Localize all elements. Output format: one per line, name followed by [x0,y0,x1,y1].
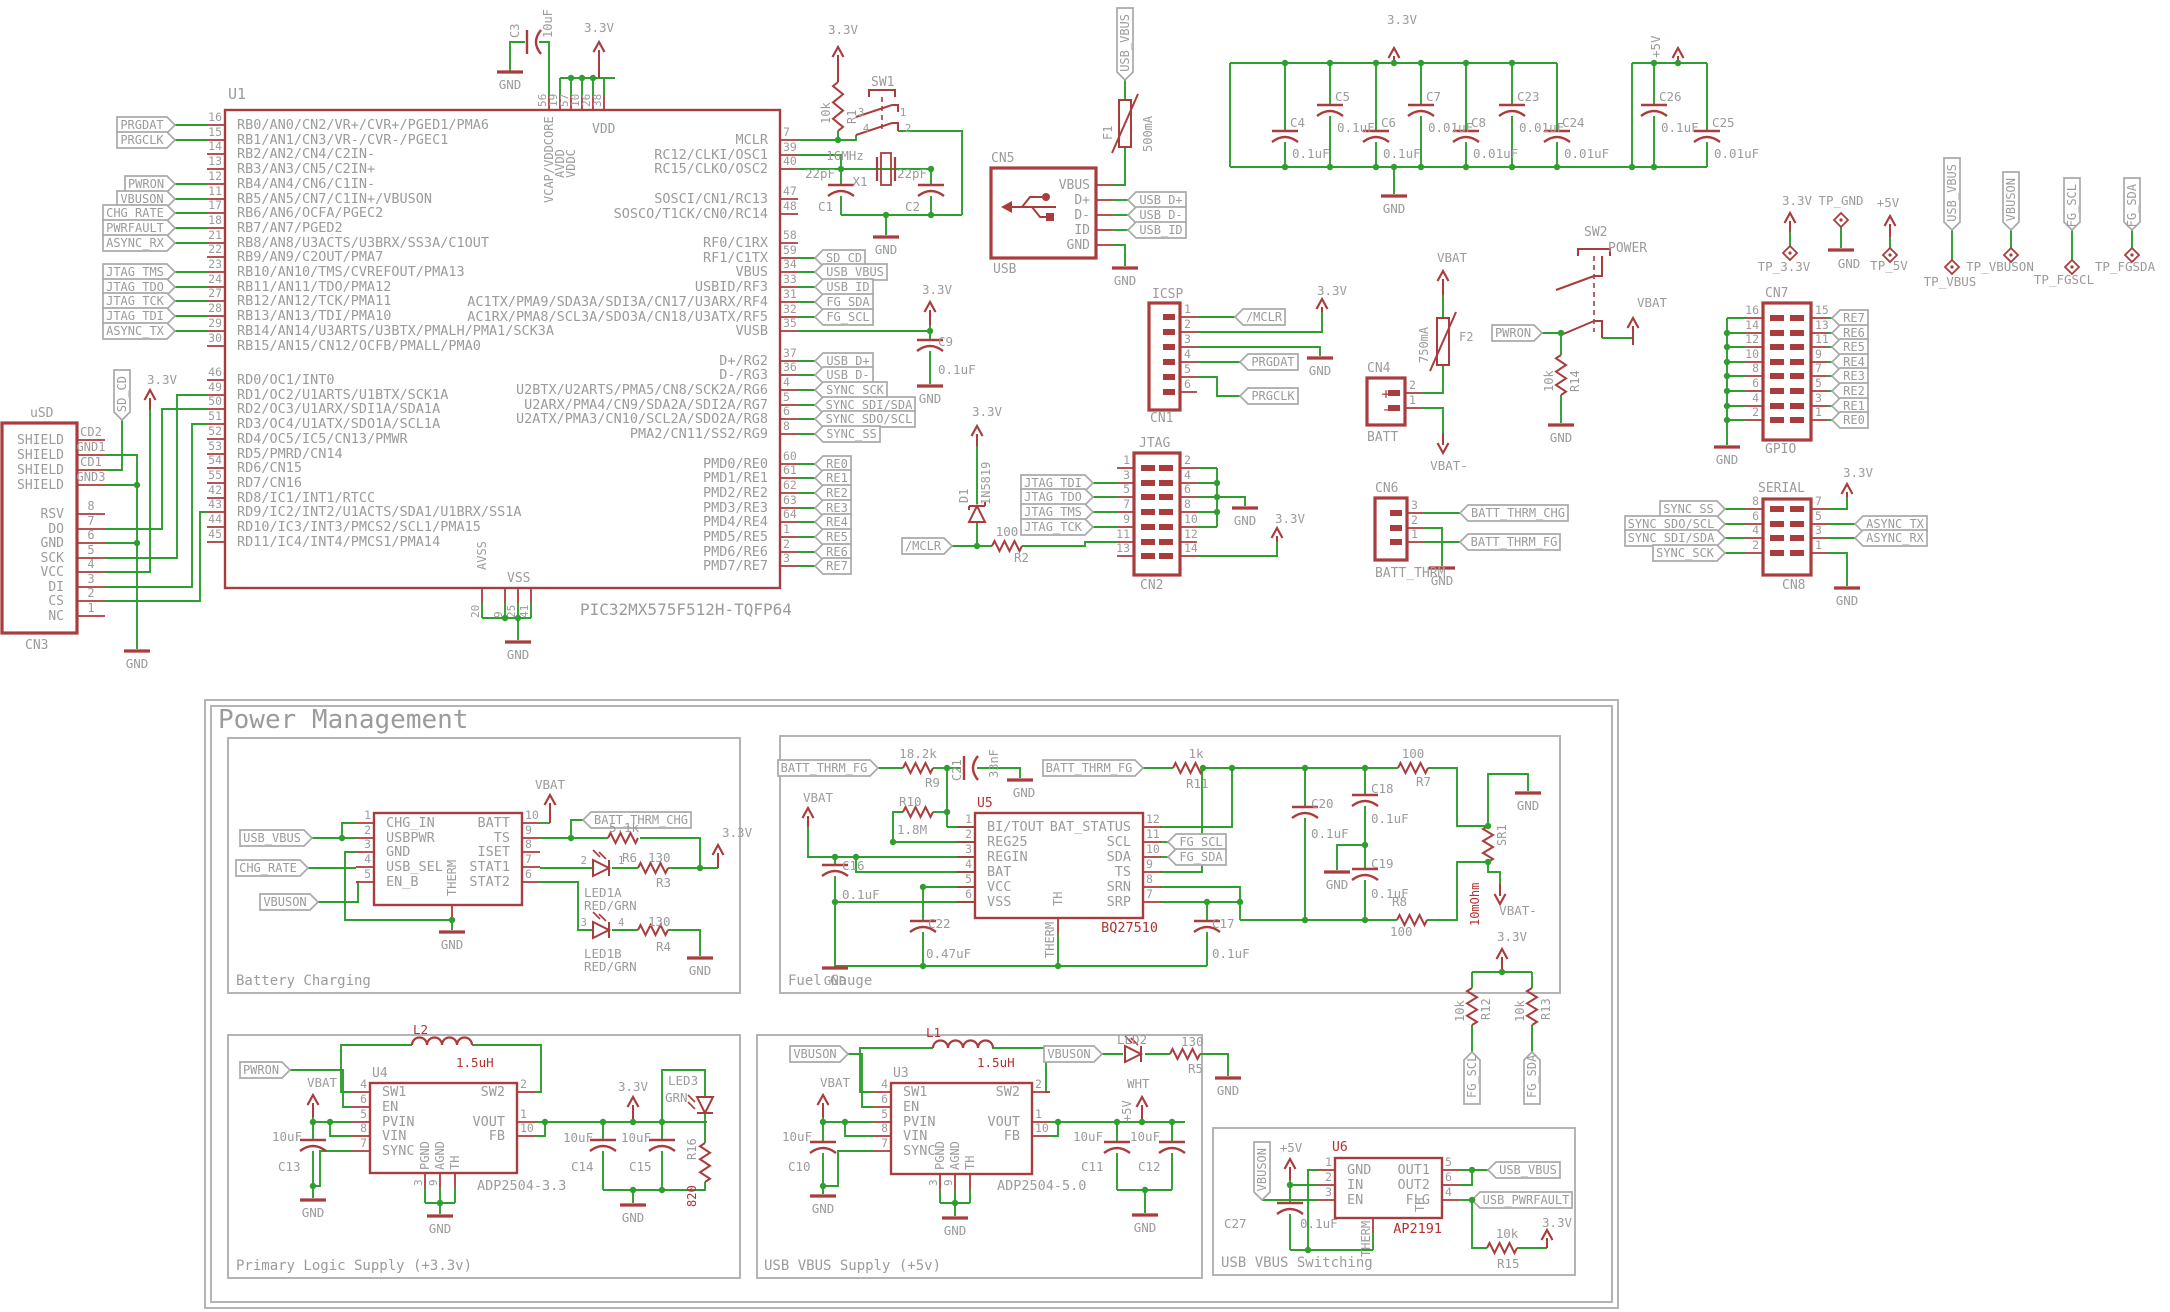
svg-text:VSS: VSS [987,894,1011,910]
svg-text:BATT: BATT [1367,430,1398,445]
schematic-svg: Power ManagementBattery ChargingFuel Gau… [0,0,2170,1312]
svg-text:L1: L1 [926,1025,941,1040]
svg-text:500mA: 500mA [1141,115,1155,152]
svg-text:0.1uF: 0.1uF [842,887,880,902]
svg-text:3: 3 [858,106,865,119]
svg-text:RD10/IC3/INT3/PMCS2/SCL1/PMA15: RD10/IC3/INT3/PMCS2/SCL1/PMA15 [237,519,481,535]
svg-text:2: 2 [1752,538,1759,552]
svg-text:5: 5 [1123,482,1130,496]
svg-text:SDA: SDA [1107,849,1131,865]
svg-text:VBAT-: VBAT- [1430,458,1468,473]
svg-text:TH: TH [1413,1198,1427,1212]
svg-text:USB VBUS Supply (+5v): USB VBUS Supply (+5v) [764,1258,941,1274]
svg-text:22: 22 [208,242,222,256]
net-label-async-tx: ASYNC_TX [103,323,175,339]
svg-text:SW1: SW1 [382,1084,406,1100]
svg-text:3: 3 [364,837,371,851]
svg-text:FG_SDA: FG_SDA [1179,850,1223,864]
svg-text:17: 17 [208,198,222,212]
svg-text:TP_5V: TP_5V [1870,258,1908,273]
svg-text:3: 3 [1815,391,1822,405]
svg-text:PMD2/RE2: PMD2/RE2 [703,485,768,501]
net-label-batt-thrm-chg: BATT_THRM_CHG [1460,505,1568,521]
svg-text:GND: GND [919,391,942,406]
svg-text:AVSS: AVSS [475,541,489,570]
net-label-re1: RE1 [815,470,851,486]
svg-text:10: 10 [520,1121,534,1135]
net-label-usb-id: USB_ID [1128,222,1186,238]
net-label-prgdat: PRGDAT [1240,354,1298,370]
svg-text:CN1: CN1 [1150,411,1173,426]
svg-text:1.8M: 1.8M [897,822,927,837]
net-label-fg-scl: FG_SCL [2064,178,2080,230]
svg-text:VBUS: VBUS [1059,178,1090,193]
svg-text:C19: C19 [1371,856,1394,871]
net-label-re3: RE3 [1832,368,1868,384]
svg-text:R5: R5 [1188,1061,1203,1076]
svg-text:1k: 1k [1188,746,1204,761]
svg-text:WHT: WHT [1127,1076,1150,1091]
svg-text:/MCLR: /MCLR [1246,310,1283,324]
svg-text:VBUSON: VBUSON [793,1047,836,1061]
svg-text:47: 47 [783,184,797,198]
net-label-pwron: PWRON [240,1062,290,1078]
net-label-vbuson: VBUSON [1254,1142,1270,1200]
svg-text:7: 7 [881,1136,888,1150]
svg-text:TP_FGSDA: TP_FGSDA [2095,259,2156,274]
svg-text:32: 32 [783,302,797,316]
net-label-fg-sda: FG_SDA [1168,849,1226,865]
net-label-fg-scl: FG_SCL [815,309,873,325]
svg-text:GND1: GND1 [77,440,106,454]
svg-text:0.01uF: 0.01uF [1473,146,1518,161]
svg-text:USB VBUS Switching: USB VBUS Switching [1221,1255,1373,1271]
svg-text:VBAT: VBAT [535,777,566,792]
svg-text:28: 28 [208,301,222,315]
svg-text:4: 4 [1184,347,1191,361]
svg-text:8: 8 [525,837,532,851]
svg-text:33nF: 33nF [987,749,1001,778]
svg-text:3: 3 [783,551,790,565]
svg-text:0.47uF: 0.47uF [926,946,971,961]
svg-text:5: 5 [965,872,972,886]
svg-text:33: 33 [783,272,797,286]
net-label-usb-id: USB_ID [815,279,873,295]
svg-text:+5V: +5V [1280,1140,1303,1155]
net-label-jtag-tms: JTAG_TMS [103,264,175,280]
svg-text:0.1uF: 0.1uF [1337,120,1375,135]
svg-text:RD2/OC3/U1ARX/SDI1A/SDA1A: RD2/OC3/U1ARX/SDI1A/SDA1A [237,401,440,417]
svg-text:7: 7 [525,852,532,866]
svg-text:RSV: RSV [41,507,65,522]
svg-text:U1: U1 [228,85,246,103]
svg-text:12: 12 [208,169,222,183]
svg-text:GND: GND [1134,1220,1157,1235]
svg-text:FB: FB [489,1128,505,1144]
svg-text:7: 7 [1815,494,1822,508]
svg-text:POWER: POWER [1608,241,1647,256]
svg-text:11: 11 [1116,527,1130,541]
svg-text:1: 1 [1325,1155,1332,1169]
svg-text:C15: C15 [629,1159,652,1174]
svg-text:OUT1: OUT1 [1397,1162,1430,1178]
svg-text:GND: GND [1716,452,1739,467]
svg-text:6: 6 [1752,376,1759,390]
svg-text:SHIELD: SHIELD [17,463,64,478]
net-label-sync-sdi-sda: SYNC_SDI/SDA [1625,530,1725,546]
svg-text:C4: C4 [1290,115,1305,130]
svg-text:RD4/OC5/IC5/CN13/PMWR: RD4/OC5/IC5/CN13/PMWR [237,431,409,447]
svg-text:U6: U6 [1332,1140,1348,1155]
svg-text:C25: C25 [1712,115,1735,130]
svg-text:3: 3 [1184,332,1191,346]
svg-text:/MCLR: /MCLR [905,539,942,553]
svg-text:R2: R2 [1014,550,1029,565]
net-label-re7: RE7 [815,558,851,574]
svg-text:RB14/AN14/U3ARTS/U3BTX/PMALH/P: RB14/AN14/U3ARTS/U3BTX/PMALH/PMA1/SCK3A [237,323,554,339]
net-label-re5: RE5 [815,529,851,545]
svg-text:RD7/CN16: RD7/CN16 [237,475,302,491]
svg-text:35: 35 [783,316,797,330]
svg-text:2: 2 [1409,378,1416,392]
svg-text:C2: C2 [905,199,920,214]
svg-text:R7: R7 [1416,774,1431,789]
svg-text:C6: C6 [1381,115,1396,130]
net-label-fg-sda: FG_SDA [2124,178,2140,230]
svg-text:ICSP: ICSP [1152,287,1183,302]
svg-text:C9: C9 [938,334,953,349]
svg-text:C12: C12 [1138,1159,1161,1174]
svg-text:10mOhm: 10mOhm [1468,883,1482,926]
svg-text:18.2k: 18.2k [899,746,937,761]
svg-text:6: 6 [1445,1170,1452,1184]
svg-text:VBUSON: VBUSON [1047,1047,1090,1061]
svg-text:RB2/AN2/CN4/C2IN-: RB2/AN2/CN4/C2IN- [237,146,375,162]
svg-text:PMD1/RE1: PMD1/RE1 [703,470,768,486]
svg-text:TP_3.3V: TP_3.3V [1758,259,1811,274]
net-label-sync-sck: SYNC_SCK [1653,545,1725,561]
net-label-usb-d-: USB_D- [1128,207,1186,223]
svg-text:40: 40 [783,154,797,168]
svg-text:7: 7 [1815,361,1822,375]
svg-text:SYNC_SS: SYNC_SS [826,427,877,441]
net-label-re0: RE0 [1832,412,1868,428]
svg-text:5: 5 [1184,362,1191,376]
svg-text:BATT_THRM_FG: BATT_THRM_FG [1471,535,1558,549]
svg-text:PWRFAULT: PWRFAULT [106,221,164,235]
svg-text:3: 3 [581,917,587,929]
svg-text:2: 2 [581,855,587,867]
svg-text:C18: C18 [1371,781,1394,796]
svg-text:RE4: RE4 [1843,355,1865,369]
svg-text:SYNC_SDO/SCL: SYNC_SDO/SCL [1628,517,1715,531]
svg-text:R4: R4 [656,939,671,954]
svg-text:4: 4 [364,852,371,866]
svg-text:LED3: LED3 [668,1073,698,1088]
svg-text:1: 1 [87,601,94,615]
svg-text:61: 61 [783,463,797,477]
svg-text:11: 11 [208,184,222,198]
svg-text:1N5819: 1N5819 [979,462,993,505]
svg-text:12: 12 [1146,812,1160,826]
svg-text:C14: C14 [571,1159,594,1174]
svg-text:C22: C22 [928,916,951,931]
svg-text:0.01uF: 0.01uF [1564,146,1609,161]
svg-text:1: 1 [965,812,972,826]
svg-text:VIN: VIN [903,1128,927,1144]
svg-text:34: 34 [783,257,797,271]
svg-text:JTAG_TDO: JTAG_TDO [106,280,164,294]
svg-text:FG_SCL: FG_SCL [1465,1055,1479,1098]
svg-text:3.3V: 3.3V [1782,193,1813,208]
svg-text:ID: ID [1074,223,1090,238]
svg-text:3: 3 [1815,523,1822,537]
svg-text:VIN: VIN [382,1128,406,1144]
svg-text:10: 10 [525,808,539,822]
svg-text:6: 6 [965,887,972,901]
svg-text:CN5: CN5 [991,151,1014,166]
svg-text:RE2: RE2 [826,486,848,500]
svg-text:VBAT: VBAT [307,1075,338,1090]
svg-text:RE3: RE3 [826,501,848,515]
svg-text:39: 39 [783,140,797,154]
svg-text:FG_SCL: FG_SCL [1179,835,1222,849]
svg-text:6: 6 [1752,509,1759,523]
svg-text:+5V: +5V [1648,35,1663,58]
svg-text:SHIELD: SHIELD [17,478,64,493]
svg-text:RF0/C1RX: RF0/C1RX [703,235,768,251]
svg-text:1: 1 [1815,538,1822,552]
svg-text:VBUSON: VBUSON [263,895,306,909]
svg-text:SYNC_SCK: SYNC_SCK [1656,546,1715,560]
svg-text:20: 20 [469,605,482,618]
svg-text:RB3/AN3/CN5/C2IN+: RB3/AN3/CN5/C2IN+ [237,161,375,177]
svg-text:R11: R11 [1186,776,1209,791]
svg-text:SW1: SW1 [871,75,894,90]
svg-text:OUT2: OUT2 [1397,1177,1430,1193]
net-label-sync-sdo-scl: SYNC_SDO/SCL [815,411,915,427]
svg-text:51: 51 [208,409,222,423]
svg-text:RE1: RE1 [1843,399,1865,413]
svg-text:2: 2 [1184,317,1191,331]
svg-text:PMD7/RE7: PMD7/RE7 [703,558,768,574]
svg-text:10uF: 10uF [272,1129,302,1144]
svg-text:2: 2 [364,823,371,837]
svg-text:820: 820 [685,1185,699,1207]
svg-text:FG_SCL: FG_SCL [2065,184,2079,227]
svg-text:12: 12 [1184,527,1198,541]
svg-text:RED/GRN: RED/GRN [584,959,637,974]
svg-text:SW2: SW2 [996,1084,1020,1100]
net-label-jtag-tck: JTAG_TCK [1021,519,1093,535]
svg-text:RD3/OC4/U1ATX/SDO1A/SCL1A: RD3/OC4/U1ATX/SDO1A/SCL1A [237,416,440,432]
svg-text:JTAG_TDI: JTAG_TDI [1024,476,1082,490]
svg-text:VBAT: VBAT [1437,250,1468,265]
svg-text:2: 2 [783,537,790,551]
svg-text:F2: F2 [1459,330,1473,344]
svg-text:R16: R16 [685,1138,699,1160]
svg-text:3: 3 [965,842,972,856]
svg-text:6: 6 [783,404,790,418]
svg-text:RB0/AN0/CN2/VR+/CVR+/PGED1/PMA: RB0/AN0/CN2/VR+/CVR+/PGED1/PMA6 [237,117,489,133]
svg-text:GND: GND [1114,273,1137,288]
svg-text:6: 6 [87,528,94,542]
svg-text:3.3V: 3.3V [1497,929,1528,944]
svg-text:GND: GND [622,1210,645,1225]
svg-text:Primary Logic Supply (+3.3v): Primary Logic Supply (+3.3v) [236,1258,472,1274]
svg-text:C17: C17 [1212,916,1235,931]
svg-text:THERM: THERM [1043,922,1057,958]
svg-text:10: 10 [1146,842,1160,856]
svg-text:ASYNC_TX: ASYNC_TX [106,324,165,338]
svg-text:JTAG_TMS: JTAG_TMS [1024,505,1082,519]
svg-text:D1: D1 [957,489,971,503]
svg-text:BI/TOUT: BI/TOUT [987,819,1044,835]
svg-text:0.1uF: 0.1uF [1300,1216,1338,1231]
svg-text:GND: GND [1383,201,1406,216]
svg-text:EN: EN [903,1099,919,1115]
svg-text:13: 13 [208,154,222,168]
svg-text:RE7: RE7 [826,559,848,573]
svg-text:GND: GND [1013,785,1036,800]
net-label-usb-pwrfault: USB_PWRFAULT [1472,1192,1572,1208]
svg-text:8: 8 [87,499,94,513]
svg-text:2: 2 [1411,513,1418,527]
svg-text:RE5: RE5 [826,530,848,544]
svg-text:24: 24 [208,272,222,286]
svg-text:38: 38 [591,94,604,107]
svg-text:SRP: SRP [1107,894,1131,910]
svg-text:3.3V: 3.3V [1317,283,1348,298]
svg-text:RE6: RE6 [1843,326,1865,340]
svg-text:3: 3 [412,1179,425,1186]
svg-text:PGND: PGND [933,1141,947,1170]
svg-text:14: 14 [208,139,222,153]
svg-text:6: 6 [1184,377,1191,391]
svg-text:8: 8 [1184,497,1191,511]
svg-text:U2BTX/U2ARTS/PMA5/CN8/SCK2A/RG: U2BTX/U2ARTS/PMA5/CN8/SCK2A/RG6 [516,382,768,398]
svg-text:8: 8 [1752,361,1759,375]
svg-text:RC15/CLKO/OSC2: RC15/CLKO/OSC2 [654,161,768,177]
svg-text:JTAG_TDO: JTAG_TDO [1024,490,1082,504]
svg-text:RE1: RE1 [826,471,848,485]
net-label-prgdat: PRGDAT [117,117,175,133]
svg-text:10uF: 10uF [782,1129,812,1144]
svg-text:FG_SDA: FG_SDA [1525,1054,1539,1098]
svg-text:7: 7 [360,1136,367,1150]
svg-text:GND: GND [1836,593,1859,608]
net-label-vbuson: VBUSON [2003,172,2019,230]
svg-text:FG_SCL: FG_SCL [826,310,869,324]
svg-text:7: 7 [783,125,790,139]
svg-text:BATT: BATT [477,815,510,831]
svg-text:VBAT-: VBAT- [1499,903,1537,918]
svg-text:GND: GND [41,536,65,551]
svg-text:14: 14 [1184,541,1198,555]
svg-text:R12: R12 [1479,998,1493,1020]
svg-text:USBID/RF3: USBID/RF3 [695,279,768,295]
svg-text:130: 130 [1181,1034,1204,1049]
svg-text:GND: GND [1517,798,1540,813]
svg-text:BQ27510: BQ27510 [1101,920,1158,936]
svg-text:2: 2 [87,586,94,600]
net-label-jtag-tdo: JTAG_TDO [1021,489,1093,505]
svg-text:ADP2504-3.3: ADP2504-3.3 [477,1178,566,1194]
svg-text:10: 10 [1035,1121,1049,1135]
svg-text:USB_ID: USB_ID [1139,223,1182,237]
svg-text:CN7: CN7 [1765,286,1788,301]
net-label-sync-ss: SYNC_SS [815,426,880,442]
svg-text:SD_CD: SD_CD [115,376,129,412]
svg-text:REG25: REG25 [987,834,1028,850]
net-label-vbuson: VBUSON [260,894,318,910]
svg-text:1: 1 [783,522,790,536]
svg-text:PRGCLK: PRGCLK [120,133,164,147]
svg-text:D-/RG3: D-/RG3 [719,367,768,383]
svg-text:9: 9 [1123,512,1130,526]
svg-text:RE3: RE3 [1843,369,1865,383]
svg-text:1: 1 [1035,1107,1042,1121]
svg-text:100: 100 [1402,746,1425,761]
svg-text:R15: R15 [1497,1256,1520,1271]
svg-text:AP2191: AP2191 [1393,1221,1442,1237]
svg-text:1: 1 [1409,393,1416,407]
svg-text:SCL: SCL [1107,834,1131,850]
net-label-re4: RE4 [815,514,851,530]
svg-text:8: 8 [783,419,790,433]
svg-text:SCK: SCK [41,551,65,566]
svg-text:GND: GND [824,973,847,988]
svg-text:2: 2 [905,122,912,135]
svg-text:VDD: VDD [592,122,616,137]
svg-text:3: 3 [1411,498,1418,512]
svg-text:R9: R9 [925,775,940,790]
svg-text:CS: CS [48,594,64,609]
svg-text:1: 1 [1411,527,1418,541]
svg-text:29: 29 [208,316,222,330]
svg-text:U2ATX/PMA3/CN10/SCL2A/SDO2A/RG: U2ATX/PMA3/CN10/SCL2A/SDO2A/RG8 [516,411,768,427]
net-label-usb-vbus: USB_VBUS [1117,8,1133,80]
net-label-re2: RE2 [1832,383,1868,399]
svg-text:1.5uH: 1.5uH [456,1055,494,1070]
svg-text:10uF: 10uF [541,9,555,38]
svg-text:DI: DI [48,580,64,595]
svg-text:SHIELD: SHIELD [17,433,64,448]
svg-text:RE5: RE5 [1843,340,1865,354]
svg-text:C13: C13 [278,1159,301,1174]
svg-text:SOSCO/T1CK/CN0/RC14: SOSCO/T1CK/CN0/RC14 [614,206,768,222]
net-label-re7: RE7 [1832,310,1868,326]
svg-text:GND: GND [1326,877,1349,892]
net-label-usb-vbus: USB_VBUS [815,264,887,280]
svg-text:C3: C3 [508,24,522,38]
svg-text:50: 50 [208,394,222,408]
svg-text:53: 53 [208,439,222,453]
svg-text:GND: GND [499,77,522,92]
svg-text:BATT_THRM_FG: BATT_THRM_FG [1046,761,1133,775]
svg-text:RD0/OC1/INT0: RD0/OC1/INT0 [237,372,335,388]
svg-text:9: 9 [525,823,532,837]
svg-text:63: 63 [783,493,797,507]
svg-text:46: 46 [208,365,222,379]
svg-text:C10: C10 [788,1159,811,1174]
net-label-prgclk: PRGCLK [117,132,175,148]
net-label-fg-sda: FG_SDA [815,294,873,310]
svg-text:GND: GND [1234,513,1257,528]
svg-text:FB: FB [1004,1128,1020,1144]
svg-text:R13: R13 [1539,998,1553,1020]
svg-text:SYNC: SYNC [903,1143,936,1159]
